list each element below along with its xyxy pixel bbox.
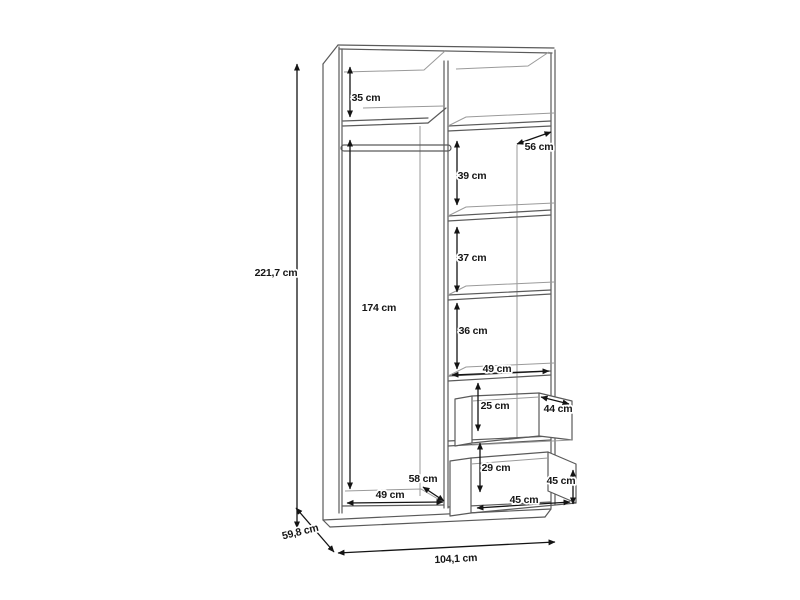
dim-label-overall-width: 104,1 cm [434, 552, 477, 566]
dim-label-drawer1-height: 25 cm [481, 400, 510, 412]
dim-label-hanging-height: 174 cm [362, 302, 396, 314]
dim-label-overall-height: 221,7 cm [255, 267, 298, 279]
dim-label-left-width: 49 cm [376, 489, 405, 501]
dimension-annotations: 221,7 cm35 cm56 cm39 cm37 cm36 cm174 cm4… [255, 64, 576, 566]
right-column-shelves [448, 113, 554, 446]
dim-label-shelf-width: 49 cm [483, 363, 512, 375]
left-column-fittings [341, 106, 451, 151]
dim-label-left-depth: 58 cm [409, 473, 438, 485]
hanging-rail-icon [341, 145, 451, 151]
dim-arrow-left-width [347, 502, 443, 503]
dim-label-top-section-height: 35 cm [352, 92, 381, 104]
diagram-canvas: 221,7 cm35 cm56 cm39 cm37 cm36 cm174 cm4… [0, 0, 800, 600]
dim-label-drawer2-width: 45 cm [510, 494, 539, 506]
dim-label-shelf-depth: 56 cm [525, 141, 554, 153]
dim-label-shelf-gap-3: 36 cm [459, 325, 488, 337]
dim-label-drawer1-depth: 44 cm [544, 403, 573, 415]
dim-label-shelf-gap-2: 37 cm [458, 252, 487, 264]
dim-label-drawer2-side-height: 45 cm [547, 475, 576, 487]
dim-label-overall-depth: 59,8 cm [281, 522, 320, 543]
dim-label-shelf-gap-1: 39 cm [458, 170, 487, 182]
dim-label-drawer2-height: 29 cm [482, 462, 511, 474]
dim-arrow-overall-width [338, 542, 555, 553]
dim-arrow-left-depth [423, 487, 444, 501]
wardrobe-dimension-diagram: 221,7 cm35 cm56 cm39 cm37 cm36 cm174 cm4… [0, 0, 800, 600]
